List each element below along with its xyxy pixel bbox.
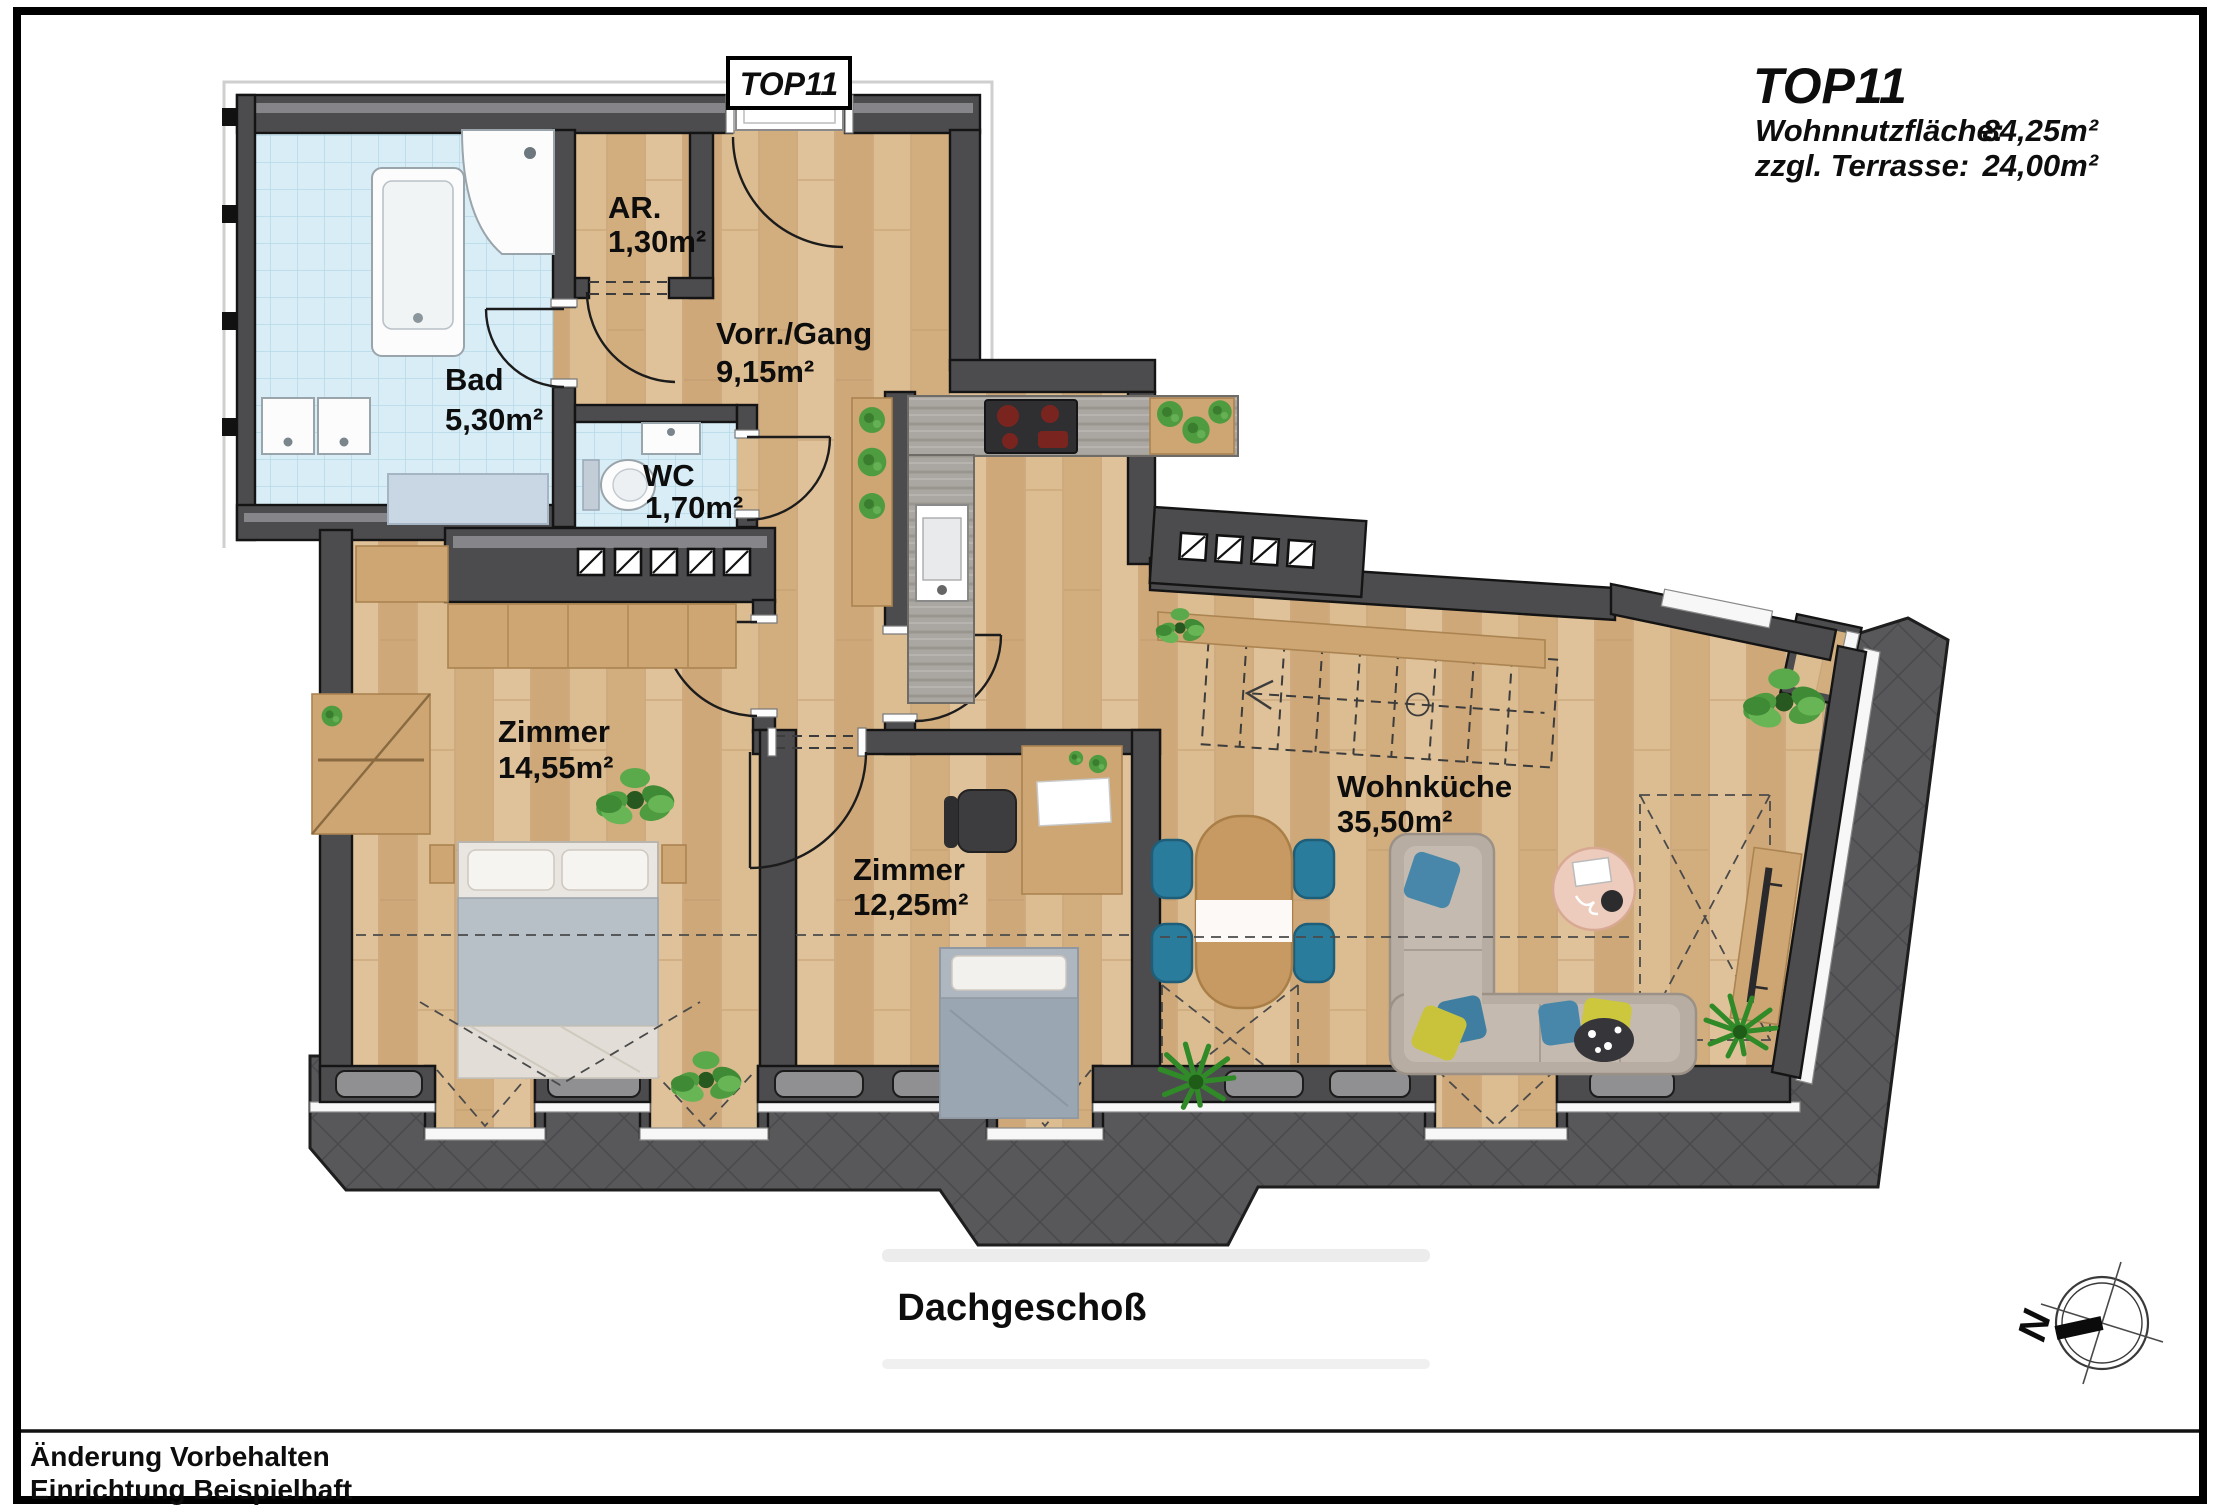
label-zimmer1-area: 14,55m² <box>498 750 613 785</box>
label-vorraum-area: 9,15m² <box>716 354 814 389</box>
toilet-tank <box>583 460 599 510</box>
compass-north-label: N <box>2010 1305 2060 1345</box>
floorplan-page: Bad 5,30m² AR. 1,30m² Vorr./Gang 9,15m² … <box>0 0 2215 1509</box>
label-ar-area: 1,30m² <box>608 224 706 259</box>
floorplan-drawing: Bad 5,30m² AR. 1,30m² Vorr./Gang 9,15m² … <box>0 0 2215 1509</box>
watermark-band <box>882 1249 1430 1262</box>
wc-sink <box>642 423 700 454</box>
label-wc-name: WC <box>643 458 695 493</box>
title-block: TOP11 Wohnnutzfläche: 84,25m² zzgl. Terr… <box>1753 58 2099 183</box>
single-bed <box>940 948 1078 1118</box>
bath-cabinet <box>388 474 548 524</box>
open-wardrobe <box>312 694 430 834</box>
footer-line1: Änderung Vorbehalten <box>30 1441 330 1472</box>
label-bad-name: Bad <box>445 362 504 397</box>
label-bad-area: 5,30m² <box>445 402 543 437</box>
floor-label: Dachgeschoß <box>897 1287 1146 1329</box>
label-zimmer2-name: Zimmer <box>853 852 965 887</box>
title-line1-label: Wohnnutzfläche: <box>1755 113 2004 148</box>
north-needle <box>2056 1323 2102 1333</box>
desk-chair <box>944 790 1016 852</box>
unit-tag-box: TOP11 <box>728 58 850 108</box>
label-vorraum-name: Vorr./Gang <box>716 316 872 351</box>
title-line2-label: zzgl. Terrasse: <box>1754 148 1969 183</box>
title-line1-value: 84,25m² <box>1983 113 2099 148</box>
unit-tag-label: TOP11 <box>740 66 838 102</box>
watermark-band <box>882 1359 1430 1369</box>
label-wc-area: 1,70m² <box>645 490 743 525</box>
wardrobe <box>356 546 448 602</box>
label-zimmer2-area: 12,25m² <box>853 887 968 922</box>
desk <box>1022 746 1122 894</box>
double-bed <box>430 842 686 1078</box>
title-unit: TOP11 <box>1753 58 1907 114</box>
footer-line2: Einrichtung Beispielhaft <box>30 1474 352 1505</box>
label-zimmer1-name: Zimmer <box>498 714 610 749</box>
compass-icon: N <box>2010 1262 2163 1384</box>
label-ar-name: AR. <box>608 190 661 225</box>
wardrobe <box>448 604 736 668</box>
title-line2-value: 24,00m² <box>1982 148 2099 183</box>
throw-blanket <box>1574 1018 1634 1062</box>
hall-shelf <box>852 398 892 606</box>
label-wohnkueche-name: Wohnküche <box>1337 769 1512 804</box>
footer: Änderung Vorbehalten Einrichtung Beispie… <box>30 1441 352 1505</box>
coffee-table <box>1553 848 1635 930</box>
label-wohnkueche-area: 35,50m² <box>1337 804 1452 839</box>
